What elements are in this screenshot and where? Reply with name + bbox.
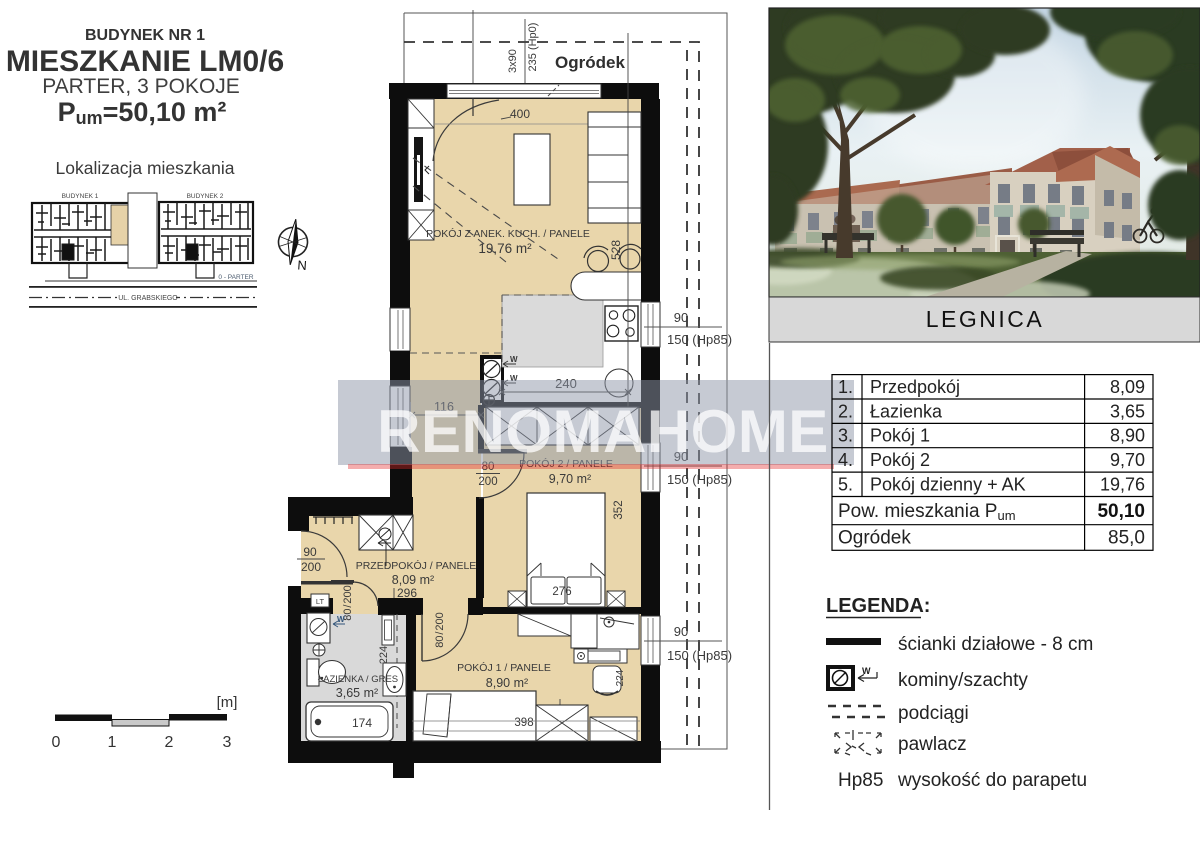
svg-text:276: 276 (552, 586, 571, 598)
svg-text:352: 352 (613, 500, 625, 519)
svg-text:Ogródek: Ogródek (838, 528, 911, 549)
svg-text:podciągi: podciągi (898, 703, 969, 724)
svg-text:1.: 1. (838, 377, 853, 397)
svg-text:8,90: 8,90 (1110, 426, 1145, 446)
svg-text:528: 528 (609, 240, 623, 260)
svg-text:9,70: 9,70 (1110, 450, 1145, 470)
svg-text:2: 2 (165, 734, 174, 751)
svg-text:Pokój 1: Pokój 1 (870, 426, 930, 446)
svg-text:296: 296 (397, 586, 417, 600)
svg-text:Ogródek: Ogródek (555, 53, 625, 72)
svg-text:3: 3 (223, 734, 232, 751)
svg-text:8,90 m²: 8,90 m² (486, 676, 528, 690)
svg-text:3,65: 3,65 (1110, 401, 1145, 421)
svg-text:LT: LT (316, 597, 325, 606)
svg-text:224: 224 (615, 669, 626, 686)
svg-text:[m]: [m] (217, 694, 238, 711)
svg-text:0 - PARTER: 0 - PARTER (218, 274, 253, 281)
svg-text:ścianki działowe - 8 cm: ścianki działowe - 8 cm (898, 634, 1093, 655)
svg-text:398: 398 (514, 717, 533, 729)
svg-text:PRZEDPOKÓJ / PANELE: PRZEDPOKÓJ / PANELE (356, 559, 477, 572)
svg-text:19,76 m²: 19,76 m² (478, 241, 532, 256)
svg-text:85,0: 85,0 (1108, 528, 1145, 549)
svg-text:ŁAZIENKA / GRES: ŁAZIENKA / GRES (318, 674, 398, 685)
svg-text:150 (Hp85): 150 (Hp85) (667, 332, 732, 347)
svg-text:400: 400 (510, 107, 530, 121)
svg-text:LEGENDA:: LEGENDA: (826, 595, 930, 617)
svg-text:RENOMAHOME: RENOMAHOME (377, 398, 829, 465)
svg-text:pawlacz: pawlacz (898, 734, 967, 755)
svg-text:5.: 5. (838, 475, 853, 495)
svg-text:200: 200 (478, 476, 497, 488)
svg-text:90: 90 (303, 545, 317, 559)
svg-text:Pokój dzienny + AK: Pokój dzienny + AK (870, 475, 1026, 495)
svg-text:4.: 4. (838, 450, 853, 470)
svg-text:POKÓJ Z ANEK. KUCH. / PANELE: POKÓJ Z ANEK. KUCH. / PANELE (426, 227, 590, 240)
svg-text:150 (Hp85): 150 (Hp85) (667, 472, 732, 487)
svg-text:UL. GRABSKIEGO: UL. GRABSKIEGO (118, 295, 178, 302)
svg-text:POKÓJ 1 / PANELE: POKÓJ 1 / PANELE (457, 661, 551, 674)
svg-text:kominy/szachty: kominy/szachty (898, 670, 1028, 691)
svg-text:3,65 m²: 3,65 m² (336, 686, 378, 700)
svg-text:Łazienka: Łazienka (870, 401, 943, 421)
svg-text:19,76: 19,76 (1100, 475, 1145, 495)
svg-text:8,09 m²: 8,09 m² (392, 573, 434, 587)
svg-text:90: 90 (674, 624, 688, 639)
svg-text:Hp85: Hp85 (838, 770, 883, 791)
svg-text:80 / 200: 80 / 200 (434, 612, 446, 647)
svg-text:9,70 m²: 9,70 m² (549, 472, 591, 486)
svg-text:BUDYNEK 2: BUDYNEK 2 (187, 193, 224, 200)
svg-text:224: 224 (378, 646, 390, 664)
svg-text:150 (Hp85): 150 (Hp85) (667, 648, 732, 663)
svg-text:W: W (510, 355, 518, 364)
svg-text:2.: 2. (838, 401, 853, 421)
svg-text:200: 200 (301, 560, 321, 574)
svg-text:N: N (297, 257, 307, 273)
svg-text:LEGNICA: LEGNICA (926, 306, 1044, 332)
svg-text:Pokój 2: Pokój 2 (870, 450, 930, 470)
svg-text:235 (Hp0): 235 (Hp0) (527, 23, 539, 72)
svg-text:BUDYNEK NR 1: BUDYNEK NR 1 (85, 27, 205, 44)
svg-text:PARTER, 3 POKOJE: PARTER, 3 POKOJE (42, 75, 240, 98)
svg-text:BUDYNEK 1: BUDYNEK 1 (62, 193, 99, 200)
svg-text:50,10: 50,10 (1097, 501, 1145, 522)
svg-text:90: 90 (674, 310, 688, 325)
svg-text:Lokalizacja mieszkania: Lokalizacja mieszkania (56, 158, 235, 178)
svg-text:8,09: 8,09 (1110, 377, 1145, 397)
svg-text:Pow. mieszkania Pum: Pow. mieszkania Pum (838, 501, 1016, 523)
svg-text:3.: 3. (838, 426, 853, 446)
svg-text:W: W (337, 615, 345, 624)
svg-text:3x90: 3x90 (507, 49, 519, 73)
svg-text:MIESZKANIE LM0/6: MIESZKANIE LM0/6 (6, 45, 284, 78)
svg-text:1: 1 (108, 734, 117, 751)
svg-text:Przedpokój: Przedpokój (870, 377, 960, 397)
svg-text:174: 174 (352, 716, 372, 730)
svg-text:0: 0 (52, 734, 61, 751)
svg-text:wysokość do parapetu: wysokość do parapetu (897, 770, 1087, 791)
